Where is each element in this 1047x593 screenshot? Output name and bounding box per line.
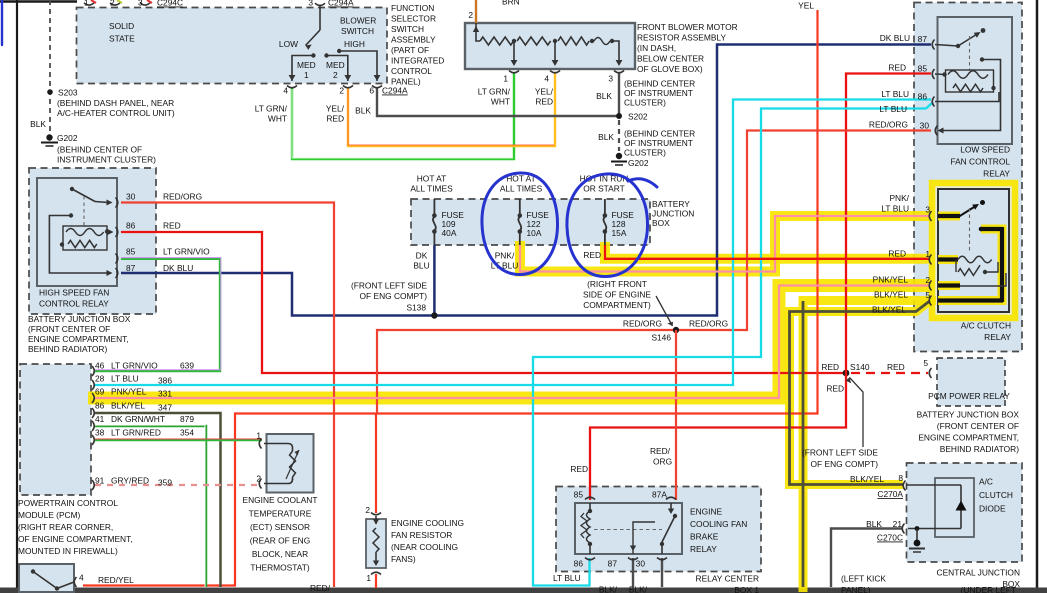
svg-text:HIGH SPEED FAN: HIGH SPEED FAN bbox=[39, 288, 109, 298]
svg-text:(REAR OF ENG: (REAR OF ENG bbox=[250, 536, 311, 546]
svg-text:SOLID: SOLID bbox=[109, 21, 134, 31]
svg-text:THERMOSTAT): THERMOSTAT) bbox=[250, 563, 309, 573]
svg-text:2: 2 bbox=[256, 474, 261, 484]
svg-text:91: 91 bbox=[95, 476, 105, 486]
svg-text:RESISTOR ASSEMBLY: RESISTOR ASSEMBLY bbox=[637, 33, 726, 43]
svg-text:PNK/: PNK/ bbox=[495, 251, 515, 261]
svg-text:4: 4 bbox=[79, 573, 84, 583]
svg-text:C294A: C294A bbox=[382, 86, 408, 96]
svg-text:RELAY: RELAY bbox=[983, 169, 1010, 179]
svg-text:BEHIND RADIATOR): BEHIND RADIATOR) bbox=[940, 444, 1019, 454]
svg-text:40A: 40A bbox=[442, 228, 457, 238]
svg-text:RED: RED bbox=[888, 249, 906, 259]
svg-text:86: 86 bbox=[95, 401, 105, 411]
svg-text:69: 69 bbox=[95, 387, 105, 397]
svg-text:2: 2 bbox=[468, 10, 473, 20]
svg-text:C294A: C294A bbox=[328, 0, 354, 8]
svg-text:ENGINE COMPARTMENT,: ENGINE COMPARTMENT, bbox=[918, 433, 1019, 443]
svg-text:BOX 1: BOX 1 bbox=[734, 585, 759, 593]
svg-text:RED/YEL: RED/YEL bbox=[98, 575, 134, 585]
svg-text:(RIGHT FRONT: (RIGHT FRONT bbox=[587, 279, 647, 289]
svg-text:BRAKE: BRAKE bbox=[690, 532, 719, 542]
svg-text:FAN RESISTOR: FAN RESISTOR bbox=[391, 530, 452, 540]
svg-text:BLK: BLK bbox=[355, 106, 371, 116]
svg-text:BLK/YEL: BLK/YEL bbox=[872, 305, 906, 315]
svg-text:(ECT) SENSOR: (ECT) SENSOR bbox=[250, 522, 310, 532]
svg-text:30: 30 bbox=[126, 192, 136, 202]
svg-text:(RIGHT REAR CORNER,: (RIGHT REAR CORNER, bbox=[18, 522, 113, 532]
svg-text:RED: RED bbox=[535, 97, 553, 107]
svg-text:A/C-HEATER CONTROL UNIT): A/C-HEATER CONTROL UNIT) bbox=[57, 108, 175, 118]
svg-text:1: 1 bbox=[256, 431, 261, 441]
svg-text:ENGINE COOLANT: ENGINE COOLANT bbox=[243, 495, 318, 505]
svg-text:OF INSTRUMENT: OF INSTRUMENT bbox=[624, 138, 693, 148]
svg-text:BLK: BLK bbox=[866, 519, 882, 529]
svg-text:3: 3 bbox=[925, 205, 930, 215]
svg-text:G202: G202 bbox=[57, 133, 78, 143]
svg-text:S140: S140 bbox=[850, 362, 870, 372]
svg-text:DK GRN/WHT: DK GRN/WHT bbox=[111, 414, 165, 424]
svg-text:COMPARTMENT): COMPARTMENT) bbox=[583, 300, 651, 310]
svg-text:BEHIND RADIATOR): BEHIND RADIATOR) bbox=[28, 344, 107, 354]
svg-text:WHT: WHT bbox=[268, 114, 287, 124]
svg-text:BRN: BRN bbox=[502, 0, 520, 7]
svg-text:COOLING FAN: COOLING FAN bbox=[690, 519, 747, 529]
svg-text:ALL TIMES: ALL TIMES bbox=[500, 184, 543, 194]
svg-text:DK BLU: DK BLU bbox=[880, 33, 910, 43]
svg-text:87: 87 bbox=[608, 559, 618, 569]
svg-text:30: 30 bbox=[920, 121, 930, 131]
svg-text:10A: 10A bbox=[527, 228, 542, 238]
svg-text:21: 21 bbox=[893, 519, 903, 529]
svg-text:RED/ORG: RED/ORG bbox=[163, 192, 202, 202]
svg-text:LT BLU: LT BLU bbox=[881, 89, 909, 99]
svg-text:POWERTRAIN CONTROL: POWERTRAIN CONTROL bbox=[18, 498, 118, 508]
svg-text:C294C: C294C bbox=[157, 0, 183, 8]
svg-text:RED/ORG: RED/ORG bbox=[623, 319, 662, 329]
svg-text:1: 1 bbox=[503, 74, 508, 84]
svg-text:2: 2 bbox=[110, 0, 115, 8]
svg-text:ENGINE COMPARTMENT,: ENGINE COMPARTMENT, bbox=[28, 334, 129, 344]
svg-text:85: 85 bbox=[918, 64, 928, 74]
svg-text:ALL TIMES: ALL TIMES bbox=[410, 184, 453, 194]
svg-text:30: 30 bbox=[636, 559, 646, 569]
svg-text:C270C: C270C bbox=[877, 533, 903, 543]
svg-text:RELAY CENTER: RELAY CENTER bbox=[696, 574, 759, 584]
svg-text:RED: RED bbox=[826, 384, 844, 394]
svg-text:LOW: LOW bbox=[279, 39, 298, 49]
svg-text:A/C CLUTCH: A/C CLUTCH bbox=[961, 321, 1011, 331]
svg-text:BELOW CENTER: BELOW CENTER bbox=[637, 54, 704, 64]
svg-text:87: 87 bbox=[126, 263, 136, 273]
svg-text:1: 1 bbox=[366, 573, 371, 583]
svg-text:86: 86 bbox=[918, 92, 928, 102]
svg-text:(IN DASH,: (IN DASH, bbox=[637, 43, 676, 53]
svg-text:4: 4 bbox=[544, 74, 549, 84]
svg-text:S138: S138 bbox=[406, 303, 426, 313]
svg-text:6: 6 bbox=[369, 86, 374, 96]
svg-text:BLK: BLK bbox=[598, 132, 614, 142]
svg-text:(FRONT CENTER OF: (FRONT CENTER OF bbox=[937, 421, 1019, 431]
svg-text:46: 46 bbox=[95, 361, 105, 371]
svg-text:2: 2 bbox=[339, 86, 344, 96]
svg-text:LT GRN/RED: LT GRN/RED bbox=[111, 428, 161, 438]
svg-text:SIDE OF ENGINE: SIDE OF ENGINE bbox=[583, 290, 651, 300]
svg-text:5: 5 bbox=[925, 290, 930, 300]
svg-text:3: 3 bbox=[608, 74, 613, 84]
svg-text:87: 87 bbox=[918, 34, 928, 44]
svg-text:FUNCTION: FUNCTION bbox=[391, 3, 434, 13]
svg-text:347: 347 bbox=[158, 403, 172, 413]
svg-text:(FRONT LEFT SIDE: (FRONT LEFT SIDE bbox=[802, 448, 878, 458]
svg-text:CONTROL: CONTROL bbox=[391, 66, 432, 76]
svg-text:CENTRAL JUNCTION: CENTRAL JUNCTION bbox=[937, 568, 1020, 578]
svg-text:(NEAR COOLING: (NEAR COOLING bbox=[391, 542, 458, 552]
svg-text:(BEHIND DASH PANEL, NEAR: (BEHIND DASH PANEL, NEAR bbox=[57, 98, 174, 108]
svg-text:5: 5 bbox=[923, 358, 928, 368]
svg-text:(BEHIND CENTER OF: (BEHIND CENTER OF bbox=[57, 145, 142, 155]
svg-text:FANS): FANS) bbox=[391, 554, 416, 564]
svg-text:(FRONT CENTER OF: (FRONT CENTER OF bbox=[28, 324, 110, 334]
svg-text:LT GRN/VIO: LT GRN/VIO bbox=[111, 361, 158, 371]
svg-text:RED/: RED/ bbox=[310, 583, 331, 593]
svg-text:BLOCK, NEAR: BLOCK, NEAR bbox=[252, 549, 308, 559]
svg-text:879: 879 bbox=[180, 414, 194, 424]
svg-text:(BEHIND CENTER: (BEHIND CENTER bbox=[624, 79, 695, 89]
svg-text:OF ENGINE COMPARTMENT,: OF ENGINE COMPARTMENT, bbox=[18, 534, 133, 544]
svg-text:354: 354 bbox=[180, 428, 194, 438]
svg-text:BLU: BLU bbox=[413, 261, 429, 271]
svg-text:HOT AT: HOT AT bbox=[417, 174, 446, 184]
svg-text:LT BLU: LT BLU bbox=[881, 204, 909, 214]
svg-text:RED: RED bbox=[887, 362, 905, 372]
svg-text:LT BLU: LT BLU bbox=[879, 104, 907, 114]
svg-text:4: 4 bbox=[283, 86, 288, 96]
svg-text:8: 8 bbox=[898, 473, 903, 483]
svg-text:LT GRN/: LT GRN/ bbox=[478, 87, 511, 97]
svg-text:YEL/: YEL/ bbox=[326, 104, 345, 114]
svg-text:INTEGRATED: INTEGRATED bbox=[391, 56, 444, 66]
svg-text:SELECTOR: SELECTOR bbox=[391, 14, 436, 24]
svg-text:OF ENG COMPT): OF ENG COMPT) bbox=[811, 459, 879, 469]
svg-text:OF ENG COMPT): OF ENG COMPT) bbox=[360, 291, 428, 301]
svg-text:S203: S203 bbox=[58, 88, 78, 98]
svg-text:RED: RED bbox=[326, 114, 344, 124]
svg-text:BLK/YEL: BLK/YEL bbox=[111, 401, 145, 411]
svg-text:RED/: RED/ bbox=[650, 446, 671, 456]
svg-text:SWITCH: SWITCH bbox=[341, 26, 374, 36]
svg-text:BLK: BLK bbox=[30, 119, 46, 129]
svg-text:SWITCH: SWITCH bbox=[391, 24, 424, 34]
svg-text:1: 1 bbox=[304, 70, 309, 80]
svg-text:DIODE: DIODE bbox=[979, 504, 1006, 514]
svg-text:RED/ORG: RED/ORG bbox=[869, 120, 908, 130]
svg-text:3: 3 bbox=[308, 0, 313, 8]
svg-text:BLK/: BLK/ bbox=[629, 585, 648, 593]
svg-text:(BEHIND CENTER: (BEHIND CENTER bbox=[624, 129, 695, 139]
svg-text:LT GRN/VIO: LT GRN/VIO bbox=[163, 247, 210, 257]
svg-text:LOW SPEED: LOW SPEED bbox=[960, 145, 1010, 155]
svg-text:386: 386 bbox=[158, 376, 172, 386]
svg-text:RED: RED bbox=[821, 362, 839, 372]
svg-text:FAN CONTROL: FAN CONTROL bbox=[950, 157, 1010, 167]
svg-text:RED: RED bbox=[888, 63, 906, 73]
svg-text:C270A: C270A bbox=[877, 489, 903, 499]
svg-text:S202: S202 bbox=[628, 112, 648, 122]
svg-text:INSTRUMENT CLUSTER): INSTRUMENT CLUSTER) bbox=[57, 155, 156, 165]
svg-text:JUNCTION: JUNCTION bbox=[652, 209, 694, 219]
svg-text:YEL/: YEL/ bbox=[535, 87, 554, 97]
svg-text:DK: DK bbox=[416, 251, 428, 261]
svg-text:1: 1 bbox=[925, 249, 930, 259]
svg-text:BLK/YEL: BLK/YEL bbox=[874, 290, 908, 300]
svg-text:YEL: YEL bbox=[798, 1, 814, 11]
svg-text:PCM POWER RELAY: PCM POWER RELAY bbox=[928, 391, 1010, 401]
svg-text:85: 85 bbox=[126, 247, 136, 257]
svg-text:LT BLU: LT BLU bbox=[111, 374, 139, 384]
svg-text:RED/ORG: RED/ORG bbox=[689, 319, 728, 329]
svg-text:PNK/: PNK/ bbox=[889, 193, 909, 203]
svg-text:2: 2 bbox=[365, 505, 370, 515]
svg-text:639: 639 bbox=[180, 361, 194, 371]
svg-text:2: 2 bbox=[925, 275, 930, 285]
svg-text:MED: MED bbox=[297, 60, 316, 70]
svg-text:86: 86 bbox=[574, 559, 584, 569]
svg-text:CLUTCH: CLUTCH bbox=[979, 490, 1013, 500]
svg-text:OR START: OR START bbox=[583, 184, 625, 194]
svg-text:OF GLOVE BOX): OF GLOVE BOX) bbox=[637, 64, 703, 74]
svg-text:RELAY: RELAY bbox=[690, 544, 717, 554]
svg-text:87A: 87A bbox=[652, 490, 667, 500]
svg-text:(LEFT KICK: (LEFT KICK bbox=[841, 574, 886, 584]
svg-text:BATTERY: BATTERY bbox=[652, 199, 690, 209]
svg-text:MODULE (PCM): MODULE (PCM) bbox=[18, 510, 81, 520]
svg-text:28: 28 bbox=[95, 374, 105, 384]
svg-text:CLUSTER): CLUSTER) bbox=[624, 98, 666, 108]
svg-text:ENGINE: ENGINE bbox=[690, 507, 723, 517]
svg-text:BLK/YEL: BLK/YEL bbox=[850, 474, 884, 484]
svg-text:BATTERY JUNCTION BOX: BATTERY JUNCTION BOX bbox=[28, 314, 131, 324]
svg-text:G202: G202 bbox=[628, 158, 649, 168]
svg-text:38: 38 bbox=[95, 428, 105, 438]
svg-text:MED: MED bbox=[326, 60, 345, 70]
svg-text:359: 359 bbox=[158, 478, 172, 488]
svg-text:(FRONT LEFT SIDE: (FRONT LEFT SIDE bbox=[351, 281, 427, 291]
svg-text:A/C: A/C bbox=[979, 477, 993, 487]
svg-text:ENGINE COOLING: ENGINE COOLING bbox=[391, 518, 464, 528]
svg-text:1: 1 bbox=[84, 0, 89, 8]
svg-text:GRY/RED: GRY/RED bbox=[111, 476, 149, 486]
svg-text:S146: S146 bbox=[651, 333, 671, 343]
svg-text:OF INSTRUMENT: OF INSTRUMENT bbox=[624, 88, 693, 98]
svg-text:BLK/: BLK/ bbox=[599, 585, 618, 593]
svg-text:RELAY: RELAY bbox=[984, 332, 1011, 342]
svg-text:(UNDER LEFT: (UNDER LEFT bbox=[961, 585, 1016, 593]
svg-text:86: 86 bbox=[126, 221, 136, 231]
svg-text:RED: RED bbox=[583, 250, 601, 260]
svg-text:MOUNTED IN FIREWALL): MOUNTED IN FIREWALL) bbox=[18, 546, 118, 556]
svg-text:85: 85 bbox=[574, 490, 584, 500]
svg-text:BLK: BLK bbox=[596, 91, 612, 101]
svg-text:41: 41 bbox=[95, 414, 105, 424]
svg-text:CONTROL RELAY: CONTROL RELAY bbox=[39, 299, 109, 309]
svg-text:LT GRN/: LT GRN/ bbox=[255, 104, 288, 114]
svg-text:WHT: WHT bbox=[491, 97, 510, 107]
svg-text:BOX: BOX bbox=[652, 218, 670, 228]
svg-text:3: 3 bbox=[138, 0, 143, 8]
svg-text:331: 331 bbox=[158, 389, 172, 399]
svg-text:15A: 15A bbox=[612, 228, 627, 238]
svg-text:PNK/YEL: PNK/YEL bbox=[873, 275, 909, 285]
svg-text:ORG: ORG bbox=[653, 457, 672, 467]
svg-text:FRONT BLOWER MOTOR: FRONT BLOWER MOTOR bbox=[637, 22, 738, 32]
svg-text:STATE: STATE bbox=[109, 34, 135, 44]
svg-text:TEMPERATURE: TEMPERATURE bbox=[249, 509, 312, 519]
svg-text:PNK/YEL: PNK/YEL bbox=[111, 387, 147, 397]
svg-text:2: 2 bbox=[333, 70, 338, 80]
svg-text:RED: RED bbox=[570, 464, 588, 474]
svg-text:DK BLU: DK BLU bbox=[163, 263, 193, 273]
svg-text:HIGH: HIGH bbox=[344, 39, 365, 49]
svg-text:(PART OF: (PART OF bbox=[391, 45, 429, 55]
svg-text:BLOWER: BLOWER bbox=[340, 16, 376, 26]
svg-text:RED: RED bbox=[163, 221, 181, 231]
svg-text:LT BLU: LT BLU bbox=[553, 573, 581, 583]
svg-text:ASSEMBLY: ASSEMBLY bbox=[391, 35, 436, 45]
svg-text:PANEL): PANEL) bbox=[841, 585, 871, 593]
svg-text:BATTERY JUNCTION BOX: BATTERY JUNCTION BOX bbox=[917, 410, 1020, 420]
svg-text:CLUSTER): CLUSTER) bbox=[624, 148, 666, 158]
